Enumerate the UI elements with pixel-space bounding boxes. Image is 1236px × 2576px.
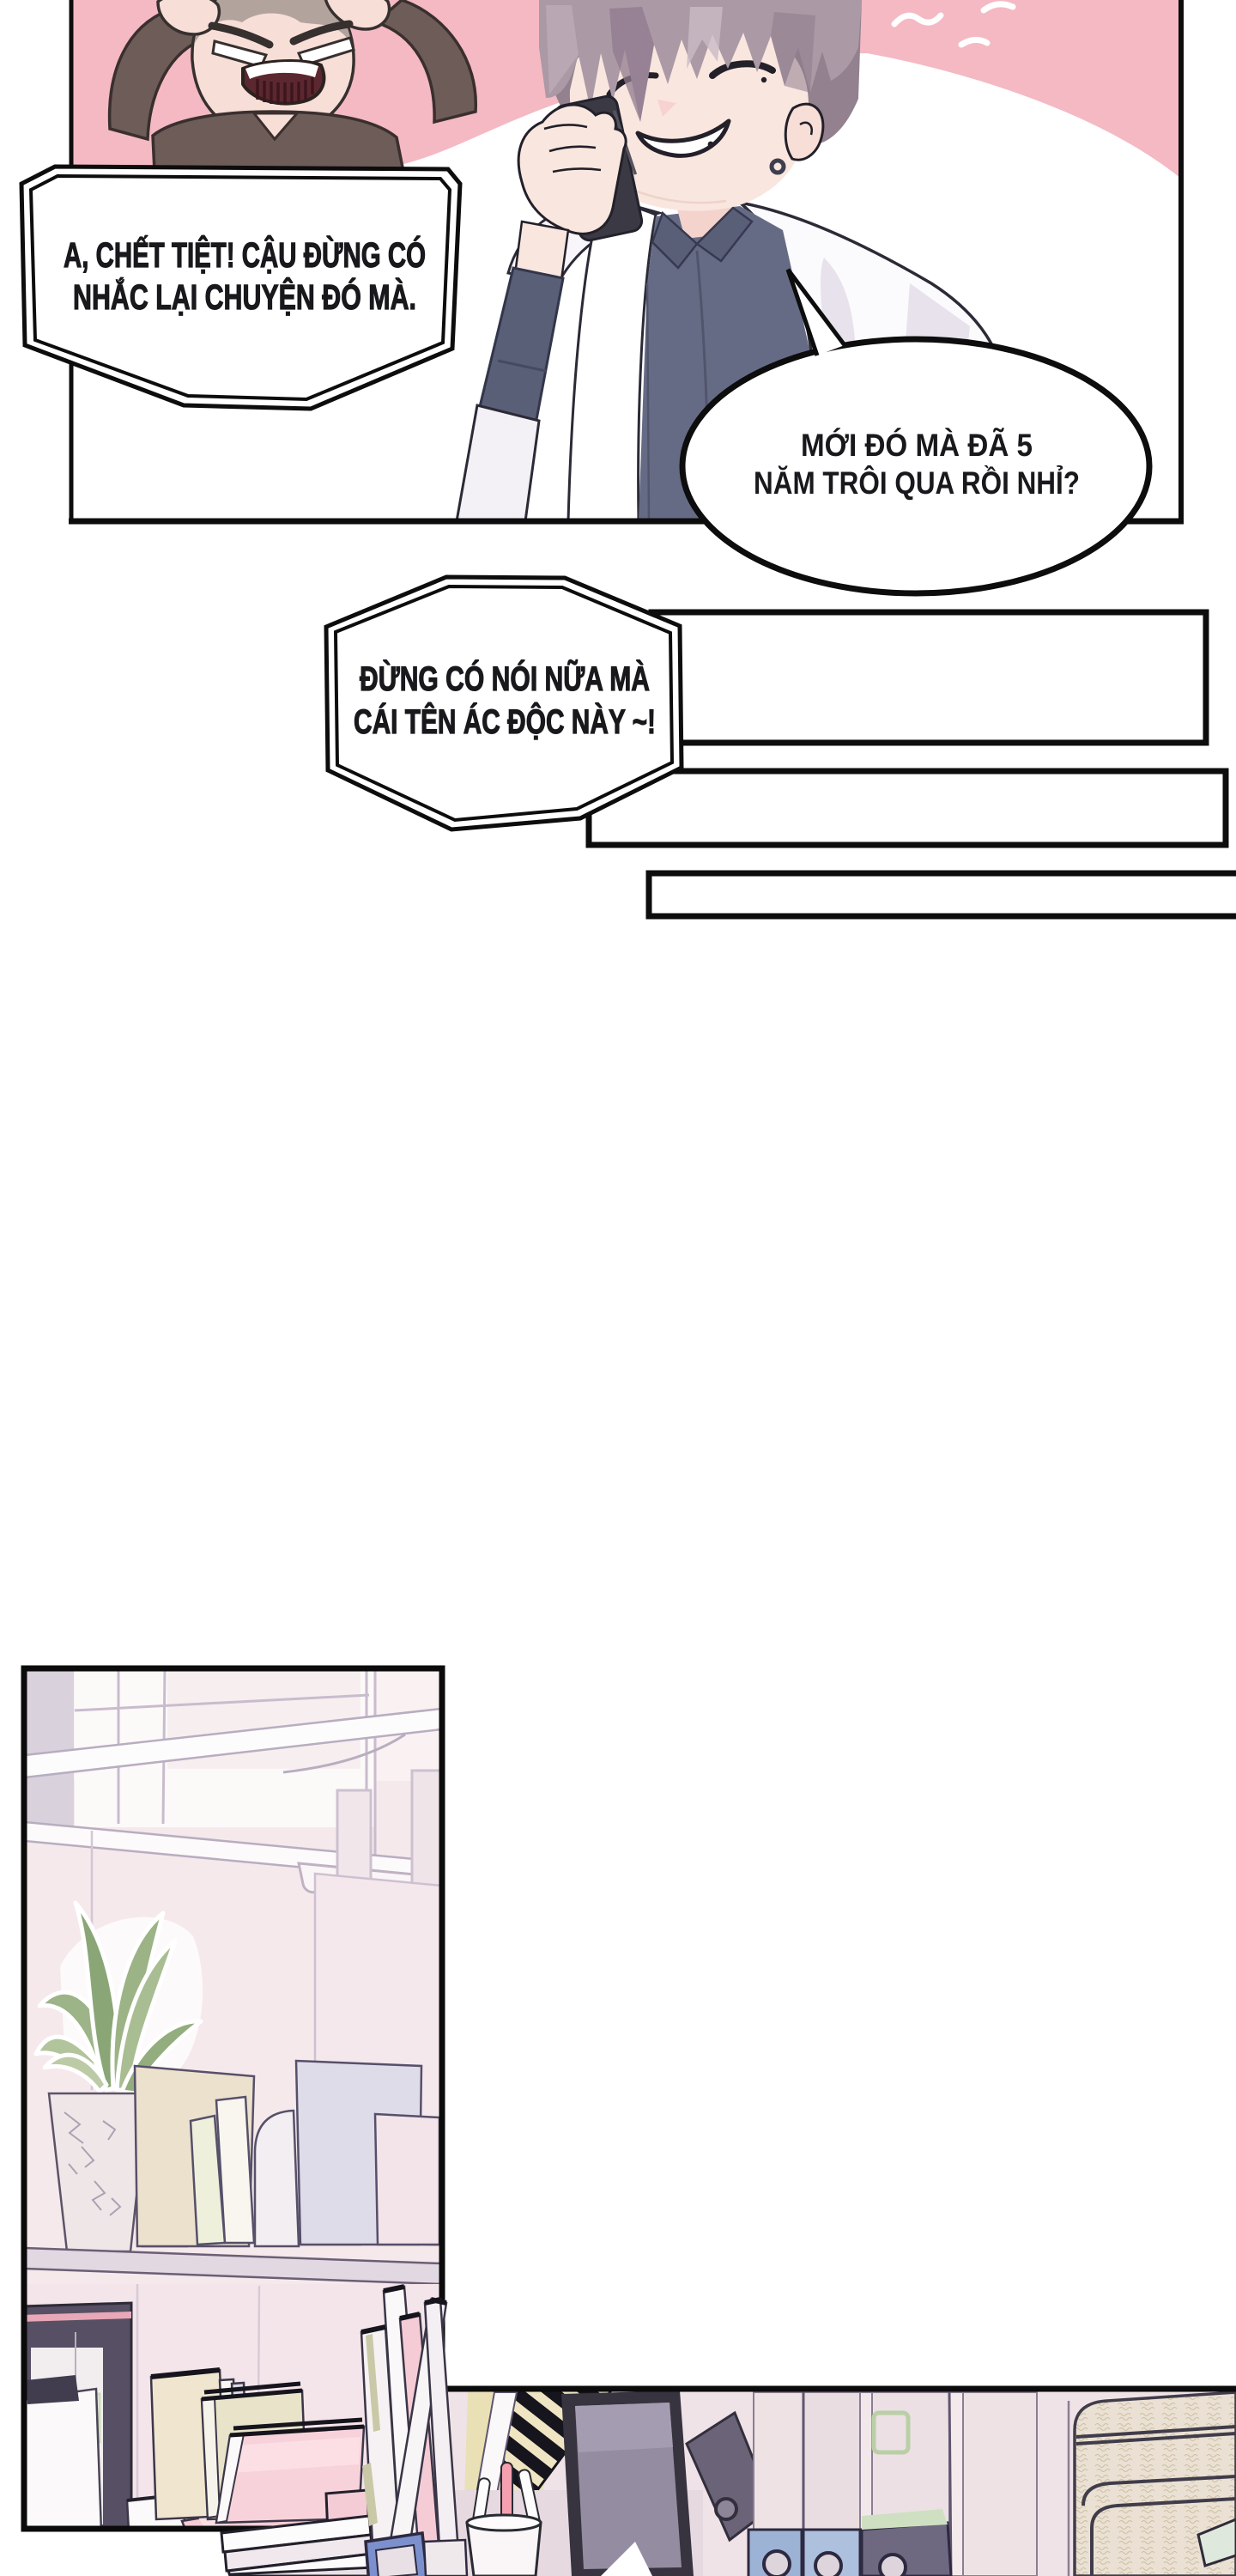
svg-text:CÁI TÊN ÁC ĐỘC NÀY ~!: CÁI TÊN ÁC ĐỘC NÀY ~! bbox=[354, 702, 656, 741]
svg-text:MỚI ĐÓ MÀ ĐÃ 5: MỚI ĐÓ MÀ ĐÃ 5 bbox=[801, 428, 1033, 463]
svg-text:NHẮC LẠI CHUYỆN ĐÓ MÀ.: NHẮC LẠI CHUYỆN ĐÓ MÀ. bbox=[73, 277, 416, 317]
svg-text:ĐỪNG CÓ NÓI NỮA MÀ: ĐỪNG CÓ NÓI NỮA MÀ bbox=[360, 659, 650, 698]
svg-text:A, CHẾT TIỆT! CẬU ĐỪNG CÓ: A, CHẾT TIỆT! CẬU ĐỪNG CÓ bbox=[64, 235, 426, 275]
svg-text:NĂM TRÔI QUA RỒI NHỈ?: NĂM TRÔI QUA RỒI NHỈ? bbox=[754, 465, 1080, 501]
